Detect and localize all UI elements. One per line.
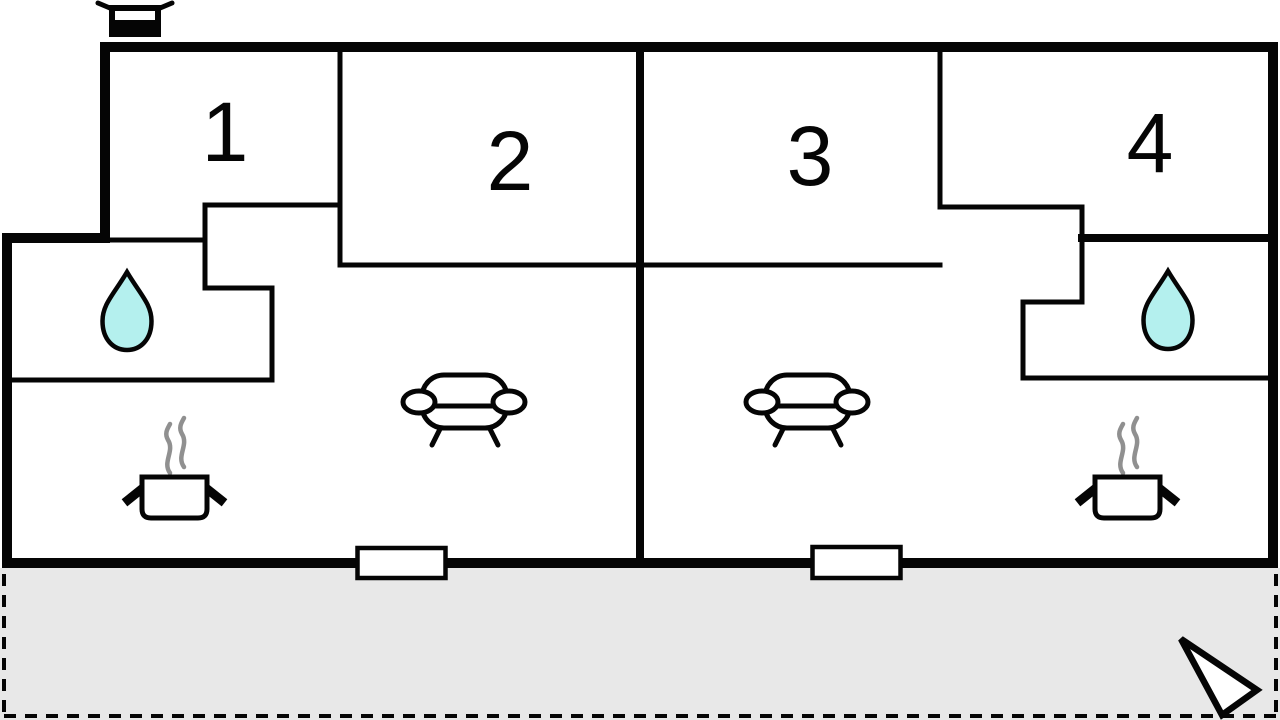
room-3-label: 3: [787, 109, 834, 203]
room-2-label: 2: [487, 114, 534, 208]
terrace-area: [0, 568, 1280, 720]
wall-hall-right: [940, 207, 1268, 378]
water-drop-icon: [103, 272, 152, 350]
water-drop-icon: [1144, 271, 1193, 349]
room-1-label: 1: [202, 85, 249, 179]
room-4-label: 4: [1127, 96, 1174, 190]
floor-plan-canvas: 1 2 3 4: [0, 0, 1280, 720]
sofa-icon: [403, 375, 525, 445]
grill-icon: [98, 3, 172, 37]
door-opening-left: [358, 548, 446, 578]
wall-room1-bottom: [7, 205, 340, 380]
cooking-pot-icon: [1081, 418, 1174, 518]
sofa-icon: [746, 375, 868, 445]
cooking-pot-icon: [128, 418, 221, 518]
door-opening-right: [813, 547, 901, 578]
floor-plan: 1 2 3 4: [0, 0, 1280, 720]
terrace: [0, 568, 1280, 720]
